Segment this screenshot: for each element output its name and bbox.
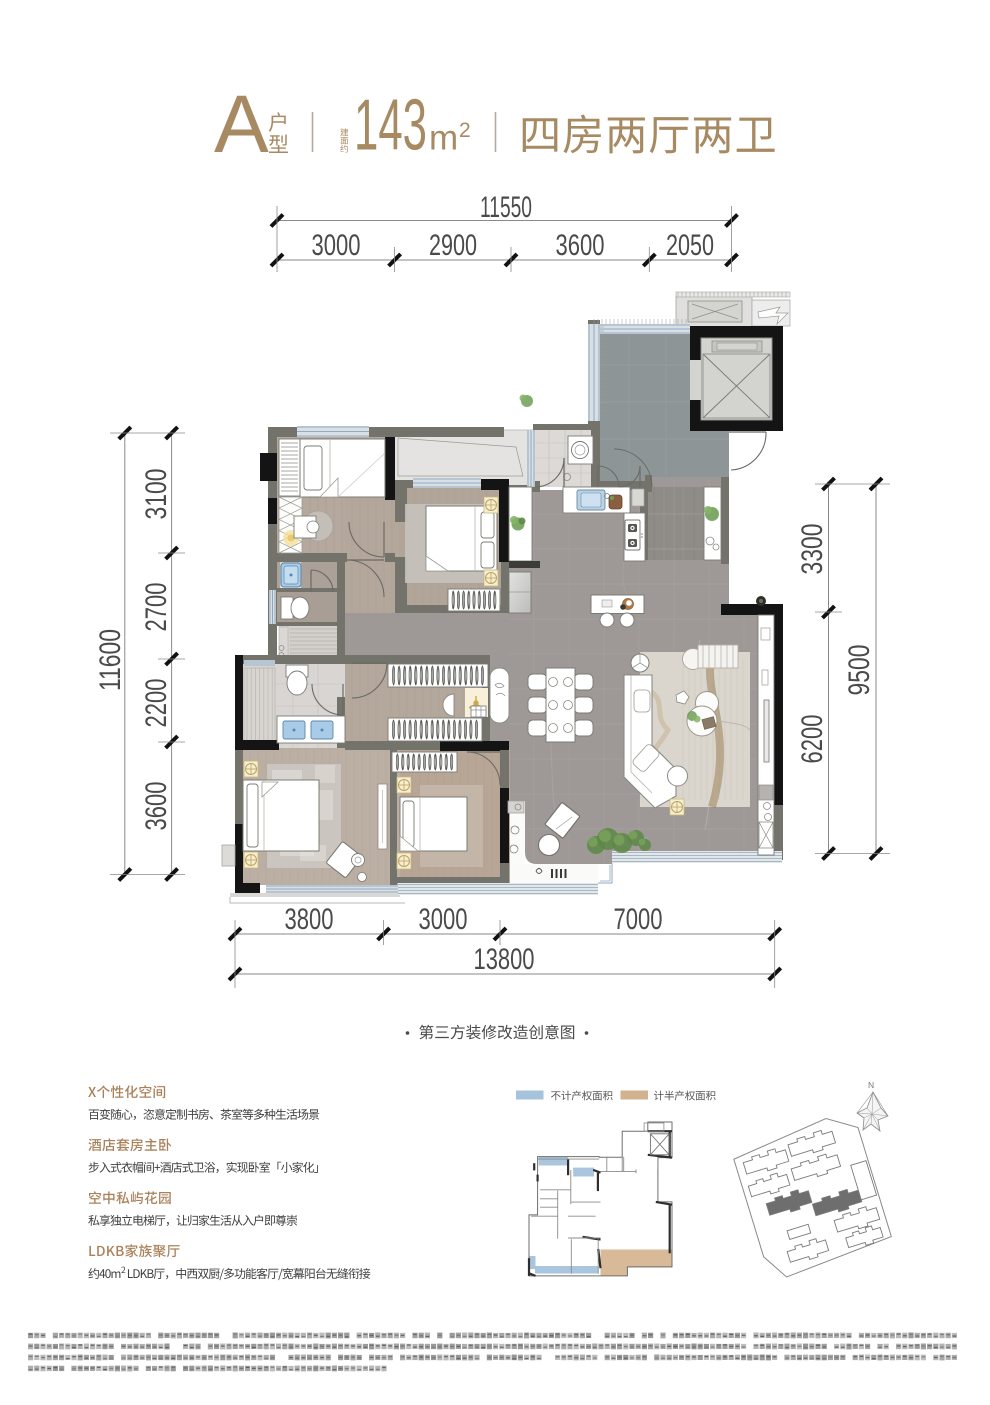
svg-text:2050: 2050	[666, 229, 714, 262]
svg-text:3300: 3300	[796, 524, 829, 575]
svg-text:9500: 9500	[843, 645, 876, 696]
svg-text:3000: 3000	[419, 903, 468, 936]
svg-text:3600: 3600	[140, 782, 173, 831]
svg-text:3100: 3100	[140, 469, 173, 520]
svg-text:11600: 11600	[94, 629, 127, 691]
svg-text:3600: 3600	[556, 229, 605, 262]
svg-text:6200: 6200	[796, 715, 829, 764]
svg-text:m: m	[429, 119, 458, 158]
svg-text:11550: 11550	[480, 191, 532, 224]
svg-text:13800: 13800	[474, 943, 535, 976]
svg-text:3800: 3800	[285, 903, 334, 936]
svg-text:N: N	[868, 1080, 874, 1090]
svg-text:143: 143	[354, 85, 427, 166]
svg-text:A: A	[214, 79, 269, 170]
svg-text:2700: 2700	[140, 583, 173, 632]
svg-text:2: 2	[459, 119, 471, 142]
svg-text:2900: 2900	[429, 229, 477, 262]
svg-text:2200: 2200	[140, 679, 173, 728]
svg-text:3000: 3000	[312, 229, 361, 262]
svg-text:7000: 7000	[614, 903, 663, 936]
